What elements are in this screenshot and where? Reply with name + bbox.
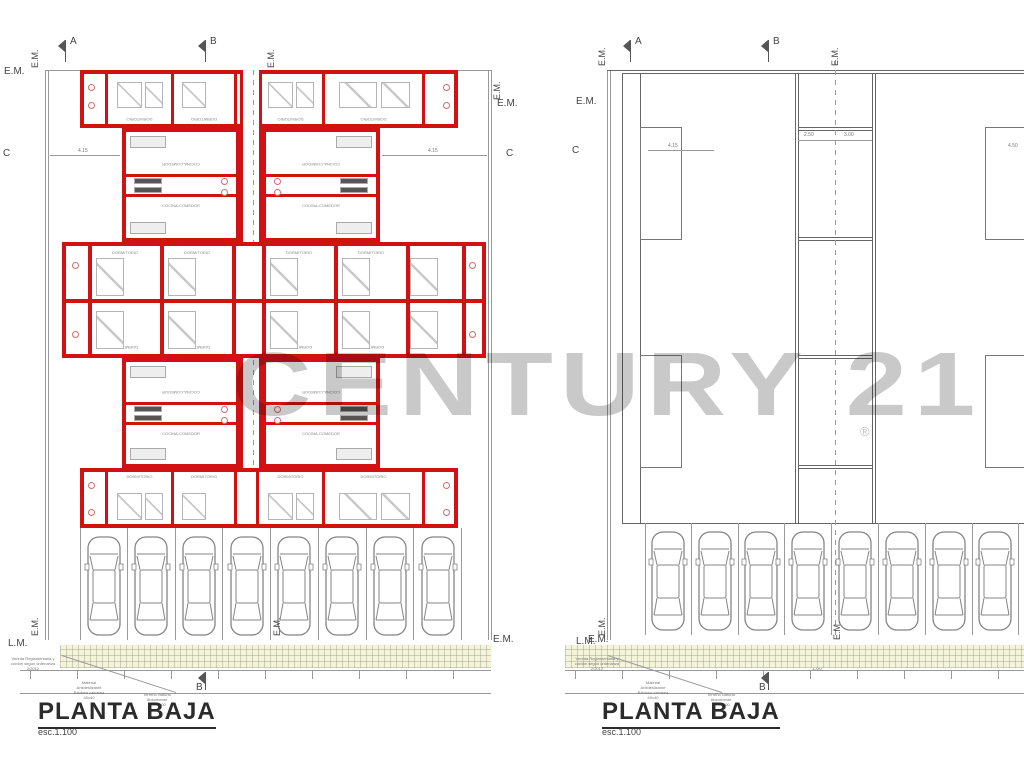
street-ticks (575, 670, 1024, 679)
stair-steps (134, 415, 162, 421)
watermark-registered-icon: ® (860, 424, 870, 439)
room-label: DORMITORIO (325, 474, 422, 479)
kitchen-counter (130, 448, 166, 460)
room-label: DORMITORIO (174, 474, 234, 479)
bed (117, 82, 142, 108)
bedroom-cell: DORMITORIO (174, 472, 237, 524)
parking-stall (176, 528, 224, 640)
bed (410, 258, 438, 296)
car-icon (648, 530, 688, 634)
em-marker: E.M. (588, 634, 609, 645)
room-label: DORMITORIO (174, 117, 234, 122)
bed (182, 493, 206, 520)
building-wall (607, 70, 1024, 71)
stair-steps (340, 187, 368, 193)
car-icon (788, 530, 828, 634)
bed (342, 258, 370, 296)
toilet-icon (88, 84, 95, 91)
em-marker: E.M. (497, 98, 518, 109)
kitchen-block: COCINA-COMEDOR COCINA-COMEDOR (262, 128, 380, 242)
interior-wall (88, 246, 92, 354)
bedroom-cell: DORMITORIO (325, 472, 425, 524)
bed (117, 493, 142, 520)
em-marker: E.M. (597, 47, 607, 66)
sink-icon (274, 189, 281, 196)
plan-title-left: PLANTA BAJA (38, 698, 216, 729)
lot-boundary-line (48, 70, 49, 640)
interior-wall (160, 246, 164, 354)
building-wall (622, 73, 1024, 74)
car-icon (882, 530, 922, 634)
grid-marker-flag (205, 40, 206, 62)
grid-marker-b: B (210, 36, 217, 47)
car-icon (975, 530, 1015, 634)
annotation-vereda: Vereda Reglamentaria y cordón según orde… (566, 656, 628, 671)
em-marker: E.M. (832, 621, 842, 640)
bedroom-band-top: DORMITORIO DORMITORIO DORMITORIO DORMITO… (80, 70, 458, 128)
em-marker: E.M. (266, 49, 276, 68)
toilet-icon (469, 262, 476, 269)
bedroom-cell: DORMITORIO (325, 74, 425, 124)
toilet-icon (443, 84, 450, 91)
car-icon (179, 535, 219, 639)
sidewalk (60, 645, 491, 668)
kitchen-counter (130, 366, 166, 378)
lm-marker: L.M. (8, 638, 27, 649)
em-marker: E.M. (4, 66, 25, 77)
bathroom-cell (425, 74, 454, 124)
parking-stall (785, 523, 832, 635)
em-marker: E.M. (493, 634, 514, 645)
em-marker: E.M. (30, 49, 40, 68)
kitchen-counter (336, 222, 372, 234)
bed (96, 258, 124, 296)
car-icon (835, 530, 875, 634)
room-label: COCINA-COMEDOR (126, 431, 236, 436)
room-label: COCINA-COMEDOR (266, 162, 376, 167)
c-marker: C (506, 148, 513, 159)
grid-marker-flag (630, 40, 631, 62)
toilet-icon (443, 482, 450, 489)
toilet-icon (72, 331, 79, 338)
kitchen-block: COCINA-COMEDOR COCINA-COMEDOR (122, 128, 240, 242)
party-wall (66, 299, 482, 303)
dimension-label: 4.15 (78, 148, 88, 154)
car-icon (227, 535, 267, 639)
annotation-material: Material Antideslizante Baldosa calcárea… (64, 680, 114, 700)
bedroom-cell: DORMITORIO (174, 74, 237, 124)
room-label: DORMITORIO (259, 117, 322, 122)
grid-marker-flag (65, 40, 66, 62)
corridor-cell (237, 472, 259, 524)
stair-steps (134, 406, 162, 412)
stair-steps (134, 178, 162, 184)
sink-icon (88, 102, 95, 109)
parking-stall (367, 528, 415, 640)
patio-notch (985, 127, 1024, 240)
parking-stall (832, 523, 879, 635)
dimension-label: 4.15 (428, 148, 438, 154)
room-label: DORMITORIO (266, 250, 332, 255)
bathroom-cell (425, 472, 454, 524)
bed (96, 311, 124, 349)
sink-icon (221, 417, 228, 424)
bed (145, 82, 164, 108)
sink-icon (274, 178, 281, 185)
bedroom-cell: DORMITORIO (108, 472, 174, 524)
bed (145, 493, 164, 520)
bed (296, 82, 315, 108)
parking-row-left (80, 528, 462, 640)
bed (168, 311, 196, 349)
car-icon (741, 530, 781, 634)
parking-stall (973, 523, 1020, 635)
plan-scale-right: esc.1.100 (602, 727, 641, 737)
plan-title-right: PLANTA BAJA (602, 698, 780, 729)
room-label: COCINA-COMEDOR (126, 390, 236, 395)
parking-stall (879, 523, 926, 635)
car-icon (695, 530, 735, 634)
bed (182, 82, 206, 108)
dimension-label: 4.15 (668, 143, 678, 149)
grid-marker-flag (768, 40, 769, 62)
annotation-vereda: Vereda Reglamentaria y cordón según orde… (2, 656, 64, 671)
grid-marker-a: A (635, 36, 642, 47)
car-icon (418, 535, 458, 639)
grid-marker-b: B (196, 682, 203, 693)
sink-icon (221, 189, 228, 196)
dimension-label: 3.00 (844, 132, 854, 138)
dimension-line (798, 140, 872, 141)
bed (339, 493, 378, 520)
building-wall (622, 73, 623, 523)
bed (168, 258, 196, 296)
grid-marker-flag (205, 672, 206, 690)
interior-wall (126, 402, 236, 405)
kitchen-counter (336, 448, 372, 460)
bed (339, 82, 378, 108)
dimension-line (382, 155, 487, 156)
em-marker: E.M. (576, 96, 597, 107)
em-marker: E.M. (272, 617, 282, 636)
bed (268, 493, 293, 520)
bed (381, 493, 410, 520)
dimension-label: 4.50 (1008, 143, 1018, 149)
parking-stall (223, 528, 271, 640)
plan-scale-left: esc.1.100 (38, 727, 77, 737)
grid-marker-flag (768, 672, 769, 690)
room-label: DORMITORIO (259, 474, 322, 479)
watermark-text: CENTURY 21 (232, 340, 983, 430)
bathroom-cell (84, 74, 108, 124)
car-icon (370, 535, 410, 639)
room-label: COCINA-COMEDOR (266, 203, 376, 208)
dimension-line (50, 155, 120, 156)
c-marker: C (572, 145, 579, 156)
bedroom-cell: DORMITORIO (259, 74, 325, 124)
toilet-icon (72, 262, 79, 269)
room-label: DORMITORIO (108, 117, 171, 122)
bed (381, 82, 410, 108)
bedroom-cell: DORMITORIO (108, 74, 174, 124)
bed (270, 258, 298, 296)
car-icon (322, 535, 362, 639)
bed (296, 493, 315, 520)
dimension-line (648, 150, 714, 151)
grid-marker-b: B (759, 682, 766, 693)
c-marker: C (3, 148, 10, 159)
grid-marker-a: A (70, 36, 77, 47)
sink-icon (88, 509, 95, 516)
parking-stall (128, 528, 176, 640)
room-label: DORMITORIO (92, 250, 158, 255)
interior-wall (266, 174, 376, 177)
parking-stall (926, 523, 973, 635)
drawing-canvas: DORMITORIO DORMITORIO DORMITORIO DORMITO… (0, 0, 1024, 768)
bedroom-cell: DORMITORIO (259, 472, 325, 524)
room-label: COCINA-COMEDOR (126, 162, 236, 167)
grid-marker-b: B (773, 36, 780, 47)
room-label: DORMITORIO (338, 250, 404, 255)
stair-steps (340, 178, 368, 184)
parking-stall (739, 523, 786, 635)
bed (268, 82, 293, 108)
car-icon (929, 530, 969, 634)
kitchen-block: COCINA-COMEDOR COCINA-COMEDOR (122, 358, 240, 468)
patio-notch (985, 355, 1024, 468)
room-label: COCINA-COMEDOR (126, 203, 236, 208)
bedroom-band-bottom: DORMITORIO DORMITORIO DORMITORIO DORMITO… (80, 468, 458, 528)
interior-wall (126, 194, 236, 197)
parking-stall (414, 528, 462, 640)
street-ticks (30, 670, 491, 679)
building-wall (795, 73, 796, 523)
em-marker: E.M. (830, 47, 840, 66)
annotation-material: Material Antideslizante Baldosa calcárea… (628, 680, 678, 700)
bathroom-cell (84, 472, 108, 524)
room-label: DORMITORIO (164, 250, 230, 255)
dimension-label: 2.50 (804, 132, 814, 138)
parking-stall (692, 523, 739, 635)
kitchen-counter (336, 136, 372, 148)
em-marker: E.M. (30, 617, 40, 636)
kitchen-counter (130, 136, 166, 148)
parking-row-right (645, 523, 1019, 635)
car-icon (84, 535, 124, 639)
sink-icon (443, 102, 450, 109)
kitchen-counter (130, 222, 166, 234)
interior-wall (266, 194, 376, 197)
interior-wall (126, 422, 236, 425)
toilet-icon (88, 482, 95, 489)
car-icon (131, 535, 171, 639)
building-wall (872, 73, 873, 523)
interior-wall (126, 174, 236, 177)
sink-icon (221, 178, 228, 185)
parking-stall (319, 528, 367, 640)
parking-stall (645, 523, 692, 635)
building-wall (875, 73, 876, 523)
parking-stall (80, 528, 128, 640)
stair-steps (134, 187, 162, 193)
sink-icon (221, 406, 228, 413)
lot-boundary-line (45, 70, 46, 640)
sink-icon (443, 509, 450, 516)
room-label: DORMITORIO (108, 474, 171, 479)
room-label: DORMITORIO (325, 117, 422, 122)
